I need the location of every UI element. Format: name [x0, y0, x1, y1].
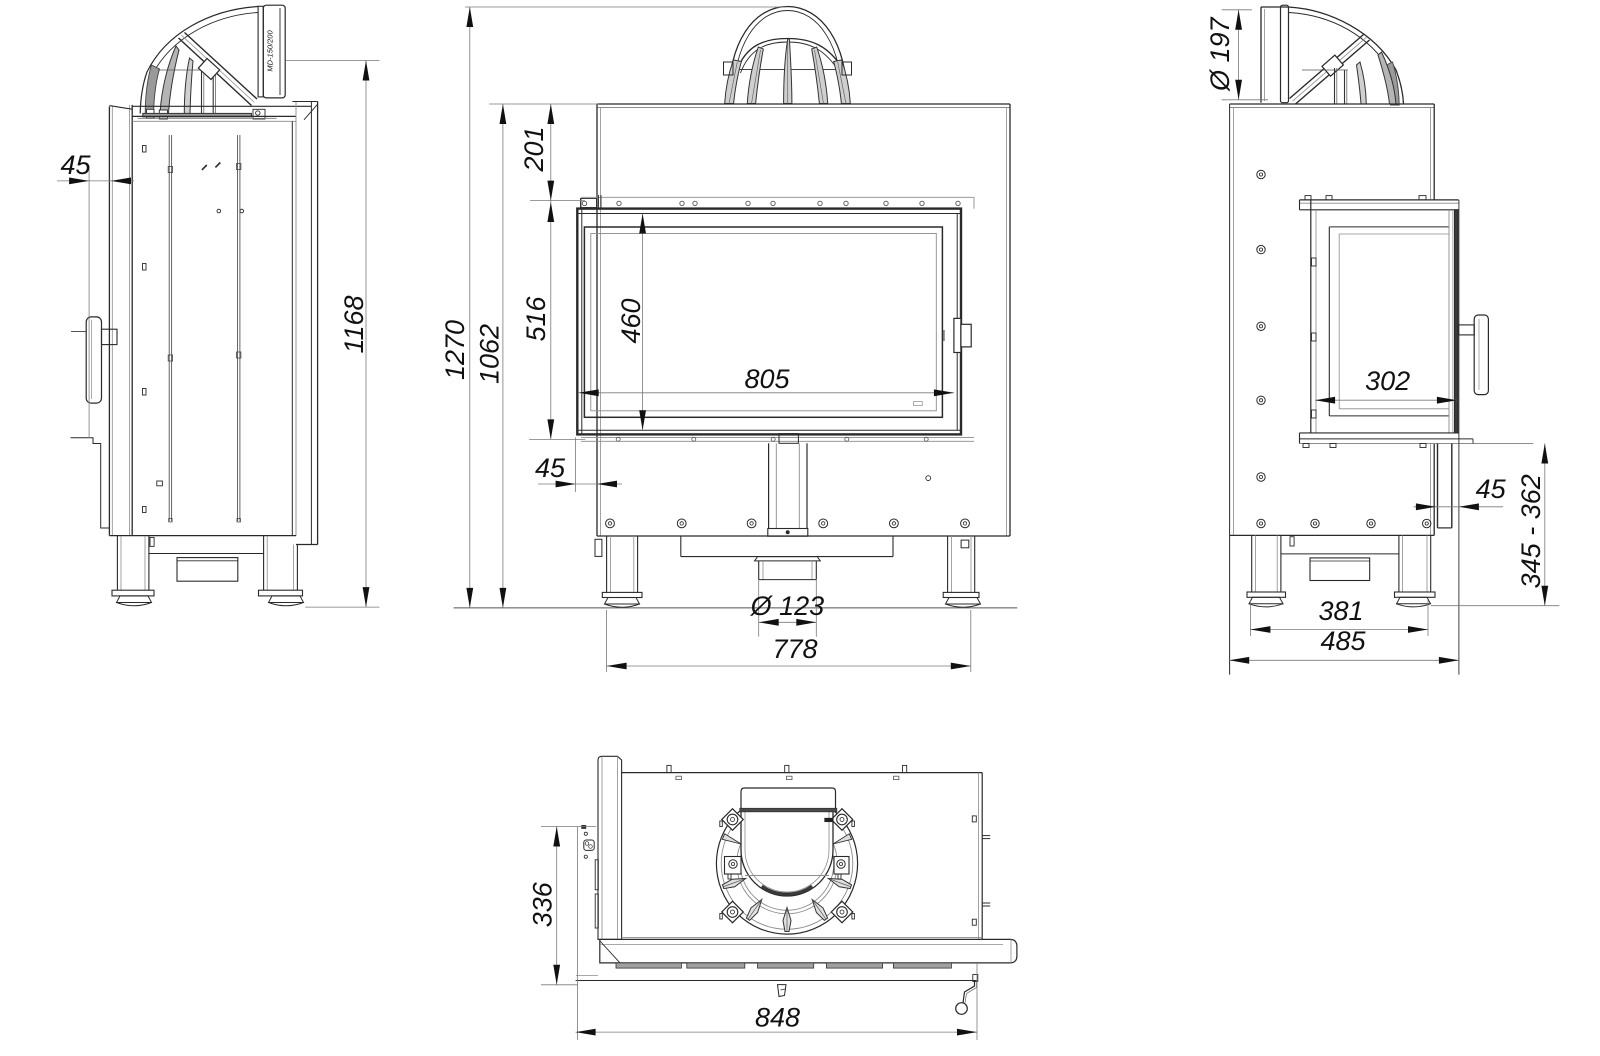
svg-text:345 - 362: 345 - 362 [1516, 474, 1546, 588]
svg-text:1270: 1270 [440, 320, 470, 380]
svg-text:302: 302 [1365, 366, 1410, 396]
svg-text:MD-150/200: MD-150/200 [266, 30, 275, 72]
svg-text:Ø 197: Ø 197 [1205, 16, 1235, 92]
svg-text:Ø 123: Ø 123 [750, 591, 825, 621]
svg-text:1062: 1062 [475, 324, 505, 384]
svg-text:778: 778 [772, 634, 817, 664]
svg-text:45: 45 [60, 150, 91, 180]
svg-text:1168: 1168 [339, 295, 369, 353]
svg-text:381: 381 [1318, 596, 1363, 626]
svg-text:485: 485 [1320, 626, 1366, 656]
svg-text:45: 45 [1476, 474, 1507, 504]
svg-text:848: 848 [755, 1003, 800, 1033]
svg-text:201: 201 [519, 126, 549, 172]
svg-text:336: 336 [528, 881, 558, 927]
svg-text:516: 516 [521, 295, 551, 341]
svg-text:460: 460 [616, 298, 646, 343]
svg-text:805: 805 [744, 364, 790, 394]
svg-text:45: 45 [535, 453, 566, 483]
